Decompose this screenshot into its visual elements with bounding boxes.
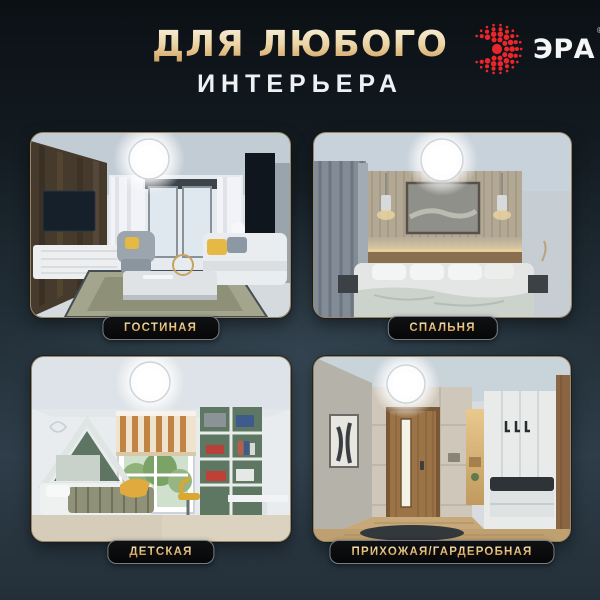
card-bedroom: СПАЛЬНЯ bbox=[313, 132, 572, 318]
bedroom-image bbox=[314, 133, 571, 317]
room-label-kids-room: ДЕТСКАЯ bbox=[107, 540, 214, 564]
registered-trademark: ® bbox=[596, 26, 600, 35]
room-label-living-room: ГОСТИНАЯ bbox=[102, 316, 219, 340]
card-kids-room: ДЕТСКАЯ bbox=[31, 356, 291, 542]
brand-name: ЭРА® bbox=[533, 36, 600, 63]
living-room-image bbox=[31, 133, 290, 317]
room-label-hallway: ПРИХОЖАЯ/ГАРДЕРОБНАЯ bbox=[329, 540, 554, 564]
hallway-image bbox=[314, 357, 570, 541]
era-sunburst-icon bbox=[468, 20, 526, 78]
room-label-bedroom: СПАЛЬНЯ bbox=[387, 316, 497, 340]
promo-page: ДЛЯ ЛЮБОГО ИНТЕРЬЕРА ЭРА® bbox=[0, 0, 600, 600]
card-living-room: ГОСТИНАЯ bbox=[30, 132, 291, 318]
card-hallway: ПРИХОЖАЯ/ГАРДЕРОБНАЯ bbox=[313, 356, 571, 542]
kids-room-image bbox=[32, 357, 290, 541]
brand-logo: ЭРА® bbox=[468, 20, 600, 78]
